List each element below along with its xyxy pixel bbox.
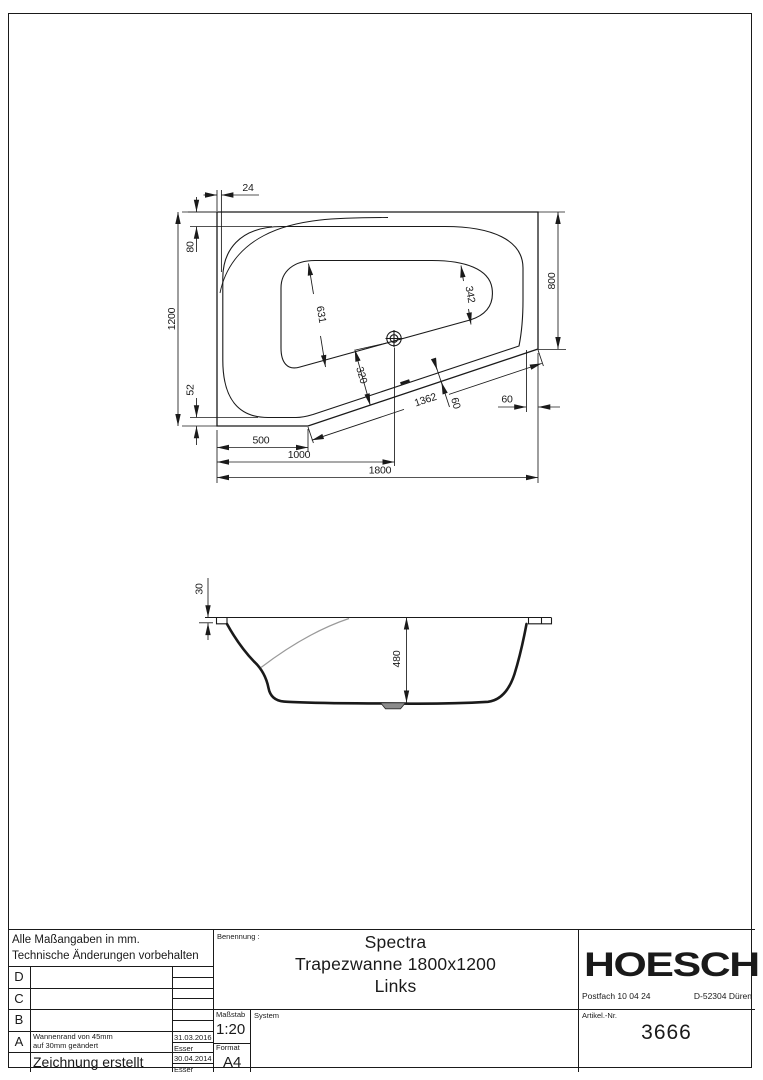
dim-631: 631 bbox=[314, 305, 329, 324]
revision-a-date: 31.03.2016 bbox=[174, 1034, 212, 1042]
part-title-line1: Spectra bbox=[213, 933, 578, 952]
note-units: Alle Maßangaben in mm. bbox=[12, 934, 140, 947]
rim-tab-right bbox=[529, 618, 552, 624]
dim-480: 480 bbox=[391, 650, 403, 667]
dim-800: 800 bbox=[546, 272, 558, 289]
dim-320: 320 bbox=[353, 365, 369, 385]
revision-letter-c: C bbox=[8, 992, 30, 1006]
dim-1800: 1800 bbox=[369, 465, 392, 477]
title-block: Alle Maßangaben in mm. Technische Änderu… bbox=[8, 929, 755, 1071]
tub-rim-inner-contour bbox=[223, 227, 523, 418]
drawing-sheet: 24 80 1200 52 800 631 342 320 1362 60 60… bbox=[0, 0, 763, 1080]
massstab-label: Maßstab bbox=[216, 1011, 245, 1019]
dim-24: 24 bbox=[242, 182, 254, 194]
plan-dimensions bbox=[178, 190, 566, 483]
revision-a-name: Esser bbox=[174, 1045, 193, 1053]
artikel-label: Artikel.-Nr. bbox=[582, 1012, 617, 1020]
plan-view bbox=[217, 212, 538, 426]
company-logo: HOESCH bbox=[584, 946, 759, 984]
revision-letter-a: A bbox=[8, 1035, 30, 1049]
address-city: D-52304 Düren bbox=[694, 991, 752, 1001]
revision-letter-b: B bbox=[8, 1013, 30, 1027]
dim-1200: 1200 bbox=[166, 307, 178, 330]
dim-60-slant: 60 bbox=[448, 396, 463, 410]
dim-60-right: 60 bbox=[501, 394, 513, 406]
part-title-line3: Links bbox=[213, 977, 578, 996]
revision-created-name: Esser bbox=[174, 1066, 193, 1074]
revision-a-desc-line1: Wannenrand von 45mm bbox=[33, 1033, 113, 1041]
format-value: A4 bbox=[223, 1055, 241, 1072]
address-postfach: Postfach 10 04 24 bbox=[582, 991, 651, 1001]
revision-created-desc: Zeichnung erstellt bbox=[33, 1055, 144, 1070]
revision-a-desc-line2: auf 30mm geändert bbox=[33, 1042, 98, 1050]
tub-section-profile bbox=[227, 624, 527, 704]
note-changes: Technische Änderungen vorbehalten bbox=[12, 950, 199, 963]
dim-52: 52 bbox=[185, 384, 197, 396]
rim-roll-edge bbox=[220, 218, 388, 294]
dim-1362: 1362 bbox=[413, 391, 439, 410]
dim-30: 30 bbox=[194, 583, 206, 595]
dim-500: 500 bbox=[253, 435, 270, 447]
backrest-slope-line bbox=[261, 619, 349, 668]
drain-section bbox=[381, 703, 406, 709]
technical-drawing: 24 80 1200 52 800 631 342 320 1362 60 60… bbox=[0, 0, 763, 1080]
massstab-value: 1:20 bbox=[216, 1022, 245, 1039]
dim-1000: 1000 bbox=[288, 449, 311, 461]
tub-basin-contour bbox=[281, 261, 492, 368]
system-label: System bbox=[254, 1012, 279, 1020]
format-label: Format bbox=[216, 1044, 240, 1052]
dim-342: 342 bbox=[463, 285, 478, 304]
part-title-line2: Trapezwanne 1800x1200 bbox=[213, 955, 578, 974]
artikel-number: 3666 bbox=[578, 1021, 755, 1044]
tub-outer-outline bbox=[217, 212, 538, 426]
revision-letter-d: D bbox=[8, 970, 30, 984]
section-view: 480 30 bbox=[194, 578, 552, 709]
rim-tab-left bbox=[217, 618, 228, 624]
company-address: Postfach 10 04 24 D-52304 Düren bbox=[582, 991, 752, 1001]
dim-80: 80 bbox=[185, 241, 197, 253]
revision-created-date: 30.04.2014 bbox=[174, 1055, 212, 1063]
drain-symbol bbox=[386, 330, 403, 347]
